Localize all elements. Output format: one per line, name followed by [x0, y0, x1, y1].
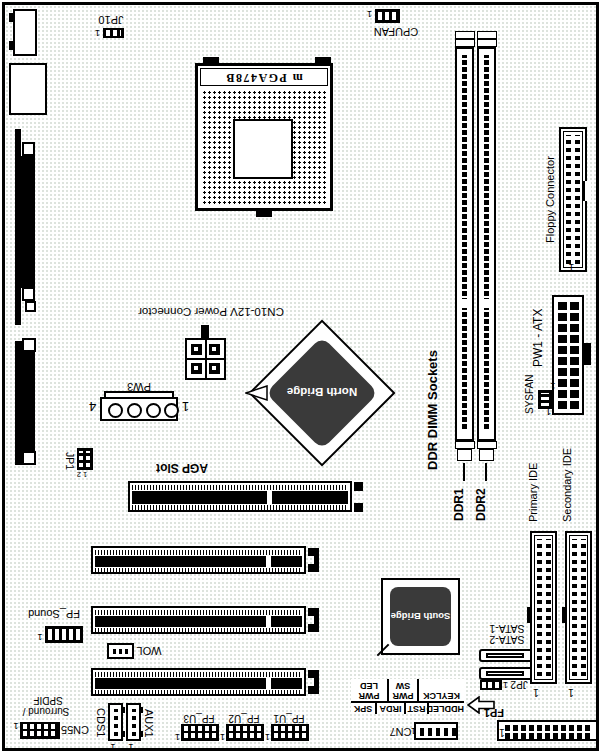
- primary-ide-connector: [530, 531, 557, 684]
- north-bridge-label: North Bridge: [272, 379, 372, 405]
- floppy-connector: [559, 127, 587, 272]
- cn10-power-connector: [185, 338, 226, 380]
- floppy-label: Floppy Connector: [544, 127, 558, 272]
- cn7-header: [414, 722, 458, 740]
- fp1-label: FP1: [483, 706, 505, 719]
- cn10-pin-hole: [194, 347, 198, 351]
- fp1-header: [497, 720, 598, 741]
- agp-end-bracket: [354, 482, 363, 491]
- sysfan-pins: [541, 393, 549, 406]
- cpu-socket-label: m PGA478B: [225, 70, 303, 85]
- agp-slot-label: AGP Slot: [145, 461, 219, 475]
- ddr2-slot: [477, 47, 496, 441]
- pci-teeth: [95, 568, 302, 573]
- pw3-pin: [127, 403, 142, 418]
- fp-u2-pins: [229, 726, 261, 731]
- fp-legend-pwr-led-1: PWR: [351, 691, 387, 701]
- ddr2-contacts: [484, 55, 489, 429]
- io-connector-serial: [15, 341, 35, 465]
- agp-end-bracket: [354, 503, 363, 512]
- pw1-pins: [558, 301, 567, 409]
- io-connector-notch: [22, 338, 36, 352]
- aux1-pins: [132, 709, 136, 736]
- ddr1-label: DDR1: [452, 482, 467, 528]
- fp-u2-label: FP_U2: [224, 712, 264, 724]
- fp-u2-pin1-marker: 1: [219, 731, 226, 742]
- jp10-pin1-marker: 1: [94, 27, 101, 37]
- fp-u2-header: [226, 724, 264, 741]
- cn55-pins: [23, 731, 57, 736]
- jp10-label: JP10: [95, 13, 127, 25]
- fp1-pins: [505, 725, 593, 731]
- cn10-pin-hole: [212, 347, 216, 351]
- ddr1-key-notch: [462, 299, 467, 308]
- fp-u3-pin1-marker: 1: [174, 731, 181, 742]
- fp-legend-irda: IRDA: [375, 703, 404, 714]
- pw1-atx-label: PW1 - ATX: [531, 294, 546, 382]
- cds1-pins: [114, 709, 118, 736]
- fp1-legend-table: HDDLED RST IRDA SPK KEYLCK PWR SW PWR LE…: [351, 679, 464, 714]
- pw3-connector: [100, 397, 178, 421]
- floppy-pin1-marker: 1: [567, 261, 576, 273]
- board-outline: JP10 1 1 CPUFAN m PGA478B DDR1 DDR2 DDR …: [2, 2, 599, 751]
- pci-slot-1: [91, 546, 306, 574]
- ddr2-latch: [477, 31, 497, 39]
- ddr1-latch-end: [457, 449, 472, 461]
- cn55-pins: [23, 724, 57, 729]
- sata-connector-1: [479, 649, 534, 662]
- io-connector-notch: [22, 287, 35, 301]
- io-connector-parallel: [21, 156, 35, 288]
- jp1-pins: [79, 451, 83, 467]
- cpufan-connector: [375, 9, 400, 23]
- fp1-pin1-marker: 1: [498, 726, 506, 738]
- sata2-label: SATA-2: [486, 634, 528, 645]
- ddr2-label: DDR2: [474, 482, 489, 528]
- ddr1-slot: [455, 47, 474, 441]
- pci-end-bar: [314, 548, 319, 572]
- north-bridge-corner-mark: [245, 385, 268, 402]
- pw3-pin: [108, 403, 123, 418]
- agp-key-notch: [267, 491, 272, 504]
- fp-u3-pins: [184, 726, 216, 731]
- jp1-jumper: [77, 448, 93, 470]
- ddr-dimm-sockets-label: DDR DIMM Sockets: [424, 342, 442, 478]
- fp-u1-pins: [274, 726, 306, 731]
- secondary-ide-label: Secondary IDE: [561, 439, 575, 531]
- ddr1-latch: [455, 31, 475, 39]
- ddr2-pointer-line: [485, 463, 487, 481]
- fp-sound-pin1-marker: 1: [36, 631, 44, 642]
- io-port-ps2: [13, 9, 37, 56]
- pw1-latch: [583, 343, 591, 365]
- sata-key: [486, 671, 524, 676]
- agp-teeth: [132, 505, 348, 510]
- cpu-socket: m PGA478B: [195, 63, 333, 211]
- agp-contact-bar: [132, 491, 348, 504]
- fp-legend-keylck: KEYLCK: [419, 691, 464, 701]
- fp-sound-header: [45, 626, 83, 643]
- ide-pins: [546, 539, 551, 676]
- fp-legend-spk: SPK: [351, 703, 375, 714]
- pci-key-notch: [266, 616, 271, 627]
- cn10-pin: [209, 363, 220, 374]
- pci-teeth: [95, 628, 302, 633]
- cn55-spdif-label: SPDIF: [29, 694, 67, 705]
- secondary-ide-key: [562, 607, 567, 623]
- ddr1-pointer-line: [463, 463, 465, 481]
- fp-u3-pins: [184, 733, 216, 738]
- sysfan-pin1-marker: 1: [549, 380, 557, 390]
- sata-key: [486, 653, 524, 658]
- ddr1-contacts: [462, 55, 467, 429]
- cds1-notch: [121, 731, 125, 737]
- jp10-jumper: [103, 28, 124, 38]
- pci-key-notch: [266, 556, 271, 567]
- south-bridge-label: South Bridge: [386, 606, 455, 626]
- io-connector-notch: [25, 301, 36, 312]
- agp-teeth: [132, 485, 348, 490]
- io-connector-notch: [22, 451, 36, 465]
- wol-pins: [113, 649, 128, 654]
- cds1-notch: [121, 707, 125, 713]
- jp1-pins: [86, 451, 90, 467]
- io-connector-notch: [22, 142, 35, 156]
- sysfan-connector: [538, 390, 552, 409]
- jp1-pin-markers: 1 2: [73, 470, 91, 478]
- cpu-socket-tab: [256, 210, 272, 217]
- ide-pins: [581, 539, 586, 676]
- pci-teeth: [95, 610, 302, 615]
- pci-slot-2: [91, 606, 306, 634]
- fp-sound-pins: [48, 629, 80, 640]
- ide-pins: [572, 539, 577, 676]
- fp-legend-rst: RST: [404, 703, 427, 714]
- jp2-label: JP2: [508, 678, 530, 690]
- jp10-pins: [106, 30, 121, 36]
- secondary-ide-connector: [565, 531, 592, 684]
- fp-u1-header: [271, 724, 309, 741]
- fp1-pins: [505, 733, 593, 739]
- floppy-pins: [575, 135, 580, 264]
- cn10-divider: [187, 358, 224, 360]
- cds1-pin1-marker: 1: [107, 741, 119, 751]
- fp-u1-label: FP_U1: [269, 712, 309, 724]
- pw1-atx-connector: [552, 295, 584, 415]
- cpufan-pins: [378, 12, 397, 20]
- fp-legend-pwr-sw-1: PWR: [389, 691, 417, 701]
- cn10-pin-hole: [194, 366, 198, 370]
- ide-pins: [537, 539, 542, 676]
- jp2-pins: [482, 682, 499, 688]
- io-port-usb: [9, 63, 47, 115]
- ddr1-latch: [455, 441, 475, 449]
- pw3-pin4-marker: 4: [87, 399, 98, 414]
- fp-legend-hddled: HDDLED: [427, 703, 464, 714]
- fp-legend-pwr-sw-2: SW: [389, 681, 417, 691]
- cn10-pin: [191, 344, 202, 355]
- fp-u1-pins: [274, 733, 306, 738]
- cpufan-pin1-marker: 1: [366, 8, 373, 19]
- floppy-pins: [566, 135, 571, 264]
- cn10-pin: [209, 344, 220, 355]
- cpufan-label: CPUFAN: [372, 25, 420, 38]
- ddr2-key-notch: [484, 299, 489, 308]
- cn55-header: [20, 722, 60, 739]
- primary-ide-label: Primary IDE: [527, 453, 541, 531]
- cn10-pin-hole: [212, 366, 216, 370]
- pw3-pin: [146, 403, 161, 418]
- pci-teeth: [95, 550, 302, 555]
- cn10-power-label: CN10-12V Power Connector: [127, 305, 295, 319]
- floppy-key-notch: [583, 181, 591, 201]
- aux1-pin1-marker: 1: [125, 741, 137, 751]
- cpu-socket-top-bar: m PGA478B: [200, 68, 328, 86]
- cn55-pin1-marker: 1: [13, 720, 19, 730]
- ddr2-latch-end: [479, 449, 494, 461]
- pci-end-bar: [314, 608, 319, 632]
- aux1-label: AUX1: [142, 702, 155, 744]
- fp-u1-pin1-marker: 1: [264, 731, 271, 742]
- secondary-ide-pin1-marker: 1: [566, 686, 576, 698]
- wol-label: WOL: [135, 644, 163, 657]
- pci-teeth: [95, 672, 302, 677]
- primary-ide-key: [527, 607, 532, 623]
- jp2-jumper: [480, 680, 502, 690]
- cds1-label: CDS1: [94, 702, 107, 744]
- fp-legend-pwr-led-2: LED: [351, 681, 387, 691]
- sysfan-label: SYSFAN: [524, 377, 537, 411]
- pci-teeth: [95, 690, 302, 695]
- pw3-pin1-marker: 1: [180, 399, 191, 414]
- pci-slot-3: [91, 668, 306, 696]
- ddr1-latch: [455, 39, 475, 47]
- cn10-pin: [191, 363, 202, 374]
- agp-slot: [128, 481, 352, 512]
- fp-u3-label: FP_U3: [179, 712, 219, 724]
- pw3-pin: [164, 403, 179, 418]
- fp-sound-label: FP_Sound: [25, 607, 83, 620]
- pci-end-bar: [314, 670, 319, 694]
- cn55-surround-label: Surround /: [17, 705, 75, 716]
- cn55-label: CN55: [60, 723, 90, 735]
- primary-ide-pin1-marker: 1: [531, 686, 541, 698]
- wol-connector: [107, 643, 134, 659]
- ddr2-latch: [477, 39, 497, 47]
- ddr2-latch: [477, 441, 497, 449]
- pw1-pins: [570, 301, 579, 409]
- fp-u3-header: [181, 724, 219, 741]
- fp-u2-pins: [229, 733, 261, 738]
- cpu-center-cavity: [233, 119, 293, 179]
- sata1-label: SATA-1: [486, 623, 528, 634]
- pci-key-notch: [266, 678, 271, 689]
- cn7-pins: [420, 728, 456, 736]
